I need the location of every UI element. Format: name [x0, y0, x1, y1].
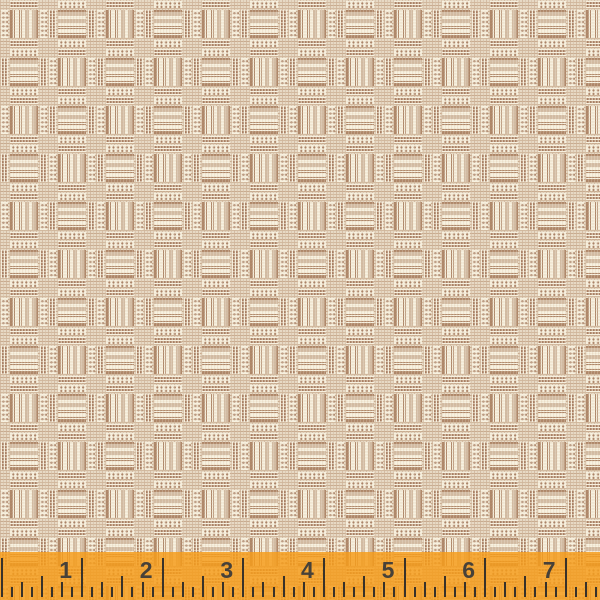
plaid-block-horizontal-stripes: [384, 240, 432, 288]
ruler-subdivision-tick: [343, 582, 345, 597]
plaid-block-vertical-stripes: [288, 0, 336, 48]
ruler-subdivision-tick: [101, 582, 103, 597]
plaid-block-horizontal-stripes: [240, 480, 288, 528]
plaid-block-horizontal-stripes: [528, 192, 576, 240]
ruler-subdivision-tick: [545, 582, 547, 597]
ruler-number-3: 3: [220, 559, 233, 582]
ruler-number-5: 5: [382, 559, 395, 582]
plaid-block-vertical-stripes: [480, 288, 528, 336]
plaid-block-horizontal-stripes: [48, 480, 96, 528]
plaid-block-horizontal-stripes: [336, 480, 384, 528]
plaid-block-horizontal-stripes: [96, 144, 144, 192]
ruler-subdivision-tick: [131, 587, 133, 597]
fabric-pattern: [0, 0, 600, 600]
ruler-subdivision-tick: [21, 582, 23, 597]
ruler-subdivision-tick: [504, 582, 506, 597]
plaid-block-vertical-stripes: [480, 480, 528, 528]
ruler-subdivision-tick: [273, 587, 275, 597]
ruler-subdivision-tick: [11, 587, 13, 597]
ruler-inch-tick: [162, 558, 164, 597]
plaid-block-horizontal-stripes: [48, 192, 96, 240]
plaid-block-horizontal-stripes: [240, 384, 288, 432]
plaid-block-vertical-stripes: [144, 432, 192, 480]
ruler-inch-tick: [242, 558, 244, 597]
ruler-subdivision-tick: [111, 587, 113, 597]
plaid-block-vertical-stripes: [48, 48, 96, 96]
ruler-inch-tick: [81, 558, 83, 597]
ruler-subdivision-tick: [333, 587, 335, 597]
plaid-block-horizontal-stripes: [384, 336, 432, 384]
plaid-block-vertical-stripes: [0, 480, 48, 528]
plaid-block-horizontal-stripes: [144, 288, 192, 336]
plaid-block-horizontal-stripes: [192, 48, 240, 96]
plaid-block-horizontal-stripes: [432, 192, 480, 240]
plaid-block-vertical-stripes: [0, 288, 48, 336]
plaid-block-vertical-stripes: [576, 192, 600, 240]
ruler-subdivision-tick: [152, 587, 154, 597]
plaid-block-horizontal-stripes: [288, 48, 336, 96]
plaid-block-vertical-stripes: [96, 0, 144, 48]
plaid-block-horizontal-stripes: [432, 288, 480, 336]
ruler-subdivision-tick: [474, 587, 476, 597]
plaid-block-horizontal-stripes: [192, 240, 240, 288]
plaid-block-horizontal-stripes: [96, 336, 144, 384]
plaid-block-horizontal-stripes: [0, 48, 48, 96]
ruler-subdivision-tick: [313, 587, 315, 597]
plaid-block-vertical-stripes: [96, 192, 144, 240]
plaid-block-vertical-stripes: [288, 288, 336, 336]
ruler-subdivision-tick: [353, 587, 355, 597]
plaid-block-vertical-stripes: [192, 0, 240, 48]
plaid-block-horizontal-stripes: [336, 288, 384, 336]
fabric-swatch-photo: 1234567: [0, 0, 600, 600]
plaid-block-horizontal-stripes: [528, 384, 576, 432]
plaid-block-vertical-stripes: [336, 144, 384, 192]
plaid-block-vertical-stripes: [240, 432, 288, 480]
plaid-block-vertical-stripes: [240, 240, 288, 288]
plaid-block-vertical-stripes: [96, 384, 144, 432]
ruler-subdivision-tick: [595, 587, 597, 597]
plaid-block-vertical-stripes: [432, 48, 480, 96]
plaid-block-horizontal-stripes: [96, 240, 144, 288]
plaid-block-horizontal-stripes: [480, 432, 528, 480]
ruler-subdivision-tick: [575, 587, 577, 597]
plaid-block-vertical-stripes: [432, 144, 480, 192]
ruler-subdivision-tick: [41, 576, 43, 597]
ruler-inch-tick: [404, 558, 406, 597]
plaid-block-vertical-stripes: [576, 0, 600, 48]
plaid-block-horizontal-stripes: [0, 432, 48, 480]
ruler-subdivision-tick: [293, 587, 295, 597]
plaid-block-horizontal-stripes: [336, 0, 384, 48]
plaid-block-vertical-stripes: [144, 144, 192, 192]
plaid-block-vertical-stripes: [432, 336, 480, 384]
ruler-subdivision-tick: [192, 587, 194, 597]
ruler-inch-tick: [484, 558, 486, 597]
ruler-number-1: 1: [59, 559, 72, 582]
plaid-block-vertical-stripes: [384, 384, 432, 432]
plaid-block-horizontal-stripes: [480, 240, 528, 288]
plaid-block-vertical-stripes: [384, 288, 432, 336]
plaid-block-vertical-stripes: [528, 336, 576, 384]
ruler-subdivision-tick: [393, 587, 395, 597]
plaid-block-vertical-stripes: [48, 144, 96, 192]
plaid-block-horizontal-stripes: [48, 0, 96, 48]
plaid-block-vertical-stripes: [192, 480, 240, 528]
plaid-block-vertical-stripes: [0, 0, 48, 48]
plaid-block-horizontal-stripes: [0, 336, 48, 384]
plaid-block-vertical-stripes: [576, 288, 600, 336]
plaid-block-horizontal-stripes: [144, 480, 192, 528]
plaid-block-vertical-stripes: [480, 384, 528, 432]
plaid-block-horizontal-stripes: [48, 384, 96, 432]
plaid-block-horizontal-stripes: [144, 0, 192, 48]
ruler-subdivision-tick: [182, 582, 184, 597]
plaid-block-vertical-stripes: [480, 96, 528, 144]
plaid-block-horizontal-stripes: [480, 48, 528, 96]
plaid-block-horizontal-stripes: [336, 192, 384, 240]
ruler-subdivision-tick: [514, 587, 516, 597]
ruler-subdivision-tick: [232, 587, 234, 597]
plaid-block-horizontal-stripes: [192, 144, 240, 192]
plaid-block-horizontal-stripes: [192, 336, 240, 384]
plaid-block-vertical-stripes: [480, 192, 528, 240]
plaid-block-horizontal-stripes: [336, 384, 384, 432]
plaid-block-horizontal-stripes: [576, 432, 600, 480]
ruler-subdivision-tick: [494, 587, 496, 597]
ruler-subdivision-tick: [142, 582, 144, 597]
plaid-block-vertical-stripes: [144, 240, 192, 288]
plaid-block-horizontal-stripes: [240, 96, 288, 144]
plaid-block-vertical-stripes: [384, 96, 432, 144]
ruler-number-2: 2: [140, 559, 153, 582]
ruler-subdivision-tick: [303, 582, 305, 597]
plaid-block-horizontal-stripes: [528, 480, 576, 528]
plaid-block-horizontal-stripes: [96, 48, 144, 96]
ruler-subdivision-tick: [61, 582, 63, 597]
plaid-block-horizontal-stripes: [288, 336, 336, 384]
plaid-block-vertical-stripes: [240, 336, 288, 384]
plaid-block-horizontal-stripes: [576, 48, 600, 96]
plaid-block-vertical-stripes: [192, 96, 240, 144]
ruler-subdivision-tick: [222, 582, 224, 597]
plaid-block-horizontal-stripes: [432, 0, 480, 48]
plaid-block-horizontal-stripes: [576, 336, 600, 384]
plaid-block-horizontal-stripes: [48, 96, 96, 144]
ruler-subdivision-tick: [585, 582, 587, 597]
ruler-subdivision-tick: [363, 576, 365, 597]
plaid-block-vertical-stripes: [336, 240, 384, 288]
plaid-block-horizontal-stripes: [240, 288, 288, 336]
plaid-block-vertical-stripes: [48, 432, 96, 480]
plaid-block-vertical-stripes: [144, 336, 192, 384]
ruler-subdivision-tick: [71, 587, 73, 597]
plaid-block-vertical-stripes: [336, 48, 384, 96]
ruler-subdivision-tick: [464, 582, 466, 597]
plaid-block-vertical-stripes: [192, 384, 240, 432]
plaid-block-horizontal-stripes: [528, 96, 576, 144]
ruler-subdivision-tick: [51, 587, 53, 597]
ruler-overlay: 1234567: [0, 552, 600, 600]
plaid-block-horizontal-stripes: [288, 240, 336, 288]
ruler-subdivision-tick: [262, 582, 264, 597]
ruler-inch-tick: [323, 558, 325, 597]
plaid-block-vertical-stripes: [48, 336, 96, 384]
ruler-subdivision-tick: [373, 587, 375, 597]
plaid-block-horizontal-stripes: [432, 480, 480, 528]
plaid-block-horizontal-stripes: [384, 144, 432, 192]
plaid-block-horizontal-stripes: [432, 384, 480, 432]
plaid-block-horizontal-stripes: [288, 144, 336, 192]
ruler-inch-tick: [1, 558, 3, 597]
plaid-block-horizontal-stripes: [240, 0, 288, 48]
ruler-subdivision-tick: [283, 576, 285, 597]
plaid-block-horizontal-stripes: [336, 96, 384, 144]
plaid-block-vertical-stripes: [192, 288, 240, 336]
plaid-block-horizontal-stripes: [0, 144, 48, 192]
plaid-block-vertical-stripes: [576, 96, 600, 144]
plaid-block-vertical-stripes: [96, 480, 144, 528]
plaid-block-vertical-stripes: [288, 480, 336, 528]
ruler-subdivision-tick: [252, 587, 254, 597]
plaid-block-vertical-stripes: [336, 432, 384, 480]
ruler-subdivision-tick: [202, 576, 204, 597]
plaid-block-vertical-stripes: [336, 336, 384, 384]
ruler-subdivision-tick: [524, 576, 526, 597]
plaid-block-vertical-stripes: [576, 480, 600, 528]
plaid-block-horizontal-stripes: [288, 432, 336, 480]
ruler-inch-tick: [565, 558, 567, 597]
ruler-subdivision-tick: [434, 587, 436, 597]
ruler-subdivision-tick: [31, 587, 33, 597]
plaid-block-horizontal-stripes: [576, 144, 600, 192]
ruler-subdivision-tick: [424, 582, 426, 597]
plaid-block-horizontal-stripes: [384, 432, 432, 480]
plaid-block-vertical-stripes: [240, 144, 288, 192]
plaid-block-vertical-stripes: [144, 48, 192, 96]
plaid-block-horizontal-stripes: [432, 96, 480, 144]
plaid-block-vertical-stripes: [576, 384, 600, 432]
plaid-block-vertical-stripes: [0, 192, 48, 240]
plaid-block-vertical-stripes: [528, 432, 576, 480]
ruler-subdivision-tick: [172, 587, 174, 597]
plaid-block-vertical-stripes: [288, 384, 336, 432]
ruler-subdivision-tick: [383, 582, 385, 597]
plaid-block-horizontal-stripes: [144, 192, 192, 240]
ruler-subdivision-tick: [555, 587, 557, 597]
plaid-block-vertical-stripes: [240, 48, 288, 96]
ruler-number-6: 6: [462, 559, 475, 582]
plaid-block-vertical-stripes: [480, 0, 528, 48]
plaid-block-vertical-stripes: [384, 480, 432, 528]
plaid-block-vertical-stripes: [288, 192, 336, 240]
plaid-block-vertical-stripes: [528, 240, 576, 288]
plaid-block-vertical-stripes: [432, 432, 480, 480]
ruler-subdivision-tick: [534, 587, 536, 597]
plaid-block-vertical-stripes: [0, 96, 48, 144]
plaid-block-vertical-stripes: [432, 240, 480, 288]
plaid-block-horizontal-stripes: [144, 384, 192, 432]
plaid-block-vertical-stripes: [528, 144, 576, 192]
plaid-block-vertical-stripes: [0, 384, 48, 432]
ruler-subdivision-tick: [121, 576, 123, 597]
plaid-block-horizontal-stripes: [144, 96, 192, 144]
plaid-block-vertical-stripes: [288, 96, 336, 144]
plaid-block-vertical-stripes: [528, 48, 576, 96]
plaid-block-horizontal-stripes: [576, 240, 600, 288]
plaid-block-horizontal-stripes: [480, 336, 528, 384]
plaid-block-vertical-stripes: [384, 192, 432, 240]
plaid-block-vertical-stripes: [384, 0, 432, 48]
plaid-block-horizontal-stripes: [0, 240, 48, 288]
ruler-number-4: 4: [301, 559, 314, 582]
ruler-subdivision-tick: [91, 587, 93, 597]
plaid-block-horizontal-stripes: [384, 48, 432, 96]
ruler-subdivision-tick: [454, 587, 456, 597]
ruler-subdivision-tick: [212, 587, 214, 597]
plaid-block-vertical-stripes: [96, 288, 144, 336]
plaid-block-vertical-stripes: [48, 240, 96, 288]
plaid-block-horizontal-stripes: [48, 288, 96, 336]
ruler-number-7: 7: [543, 559, 556, 582]
plaid-block-vertical-stripes: [192, 192, 240, 240]
plaid-block-horizontal-stripes: [528, 288, 576, 336]
plaid-block-horizontal-stripes: [480, 144, 528, 192]
plaid-block-horizontal-stripes: [240, 192, 288, 240]
plaid-block-horizontal-stripes: [96, 432, 144, 480]
plaid-block-horizontal-stripes: [192, 432, 240, 480]
ruler-subdivision-tick: [444, 576, 446, 597]
plaid-block-horizontal-stripes: [528, 0, 576, 48]
ruler-subdivision-tick: [414, 587, 416, 597]
plaid-block-vertical-stripes: [96, 96, 144, 144]
